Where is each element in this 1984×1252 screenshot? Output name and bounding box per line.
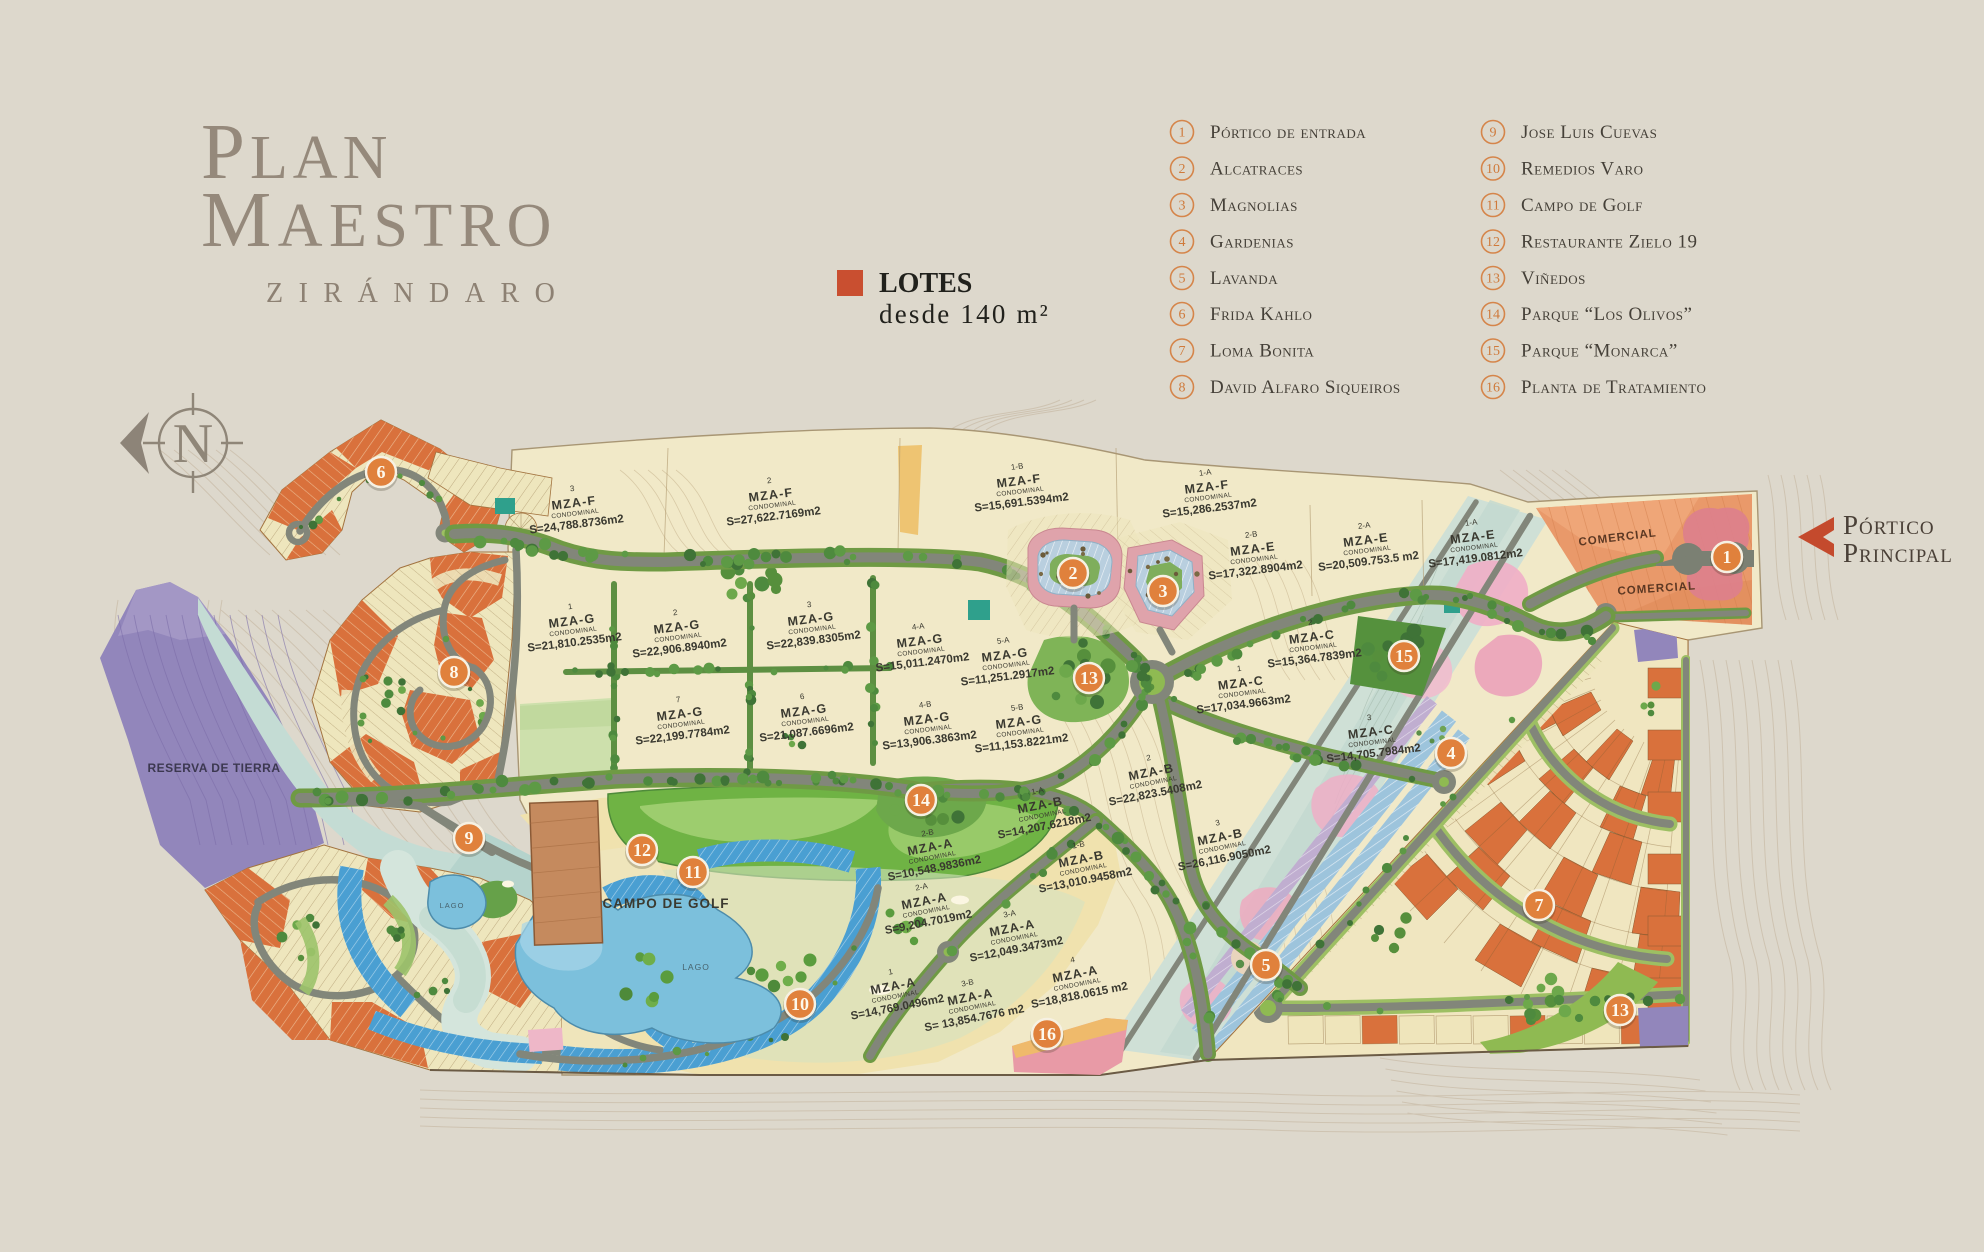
svg-text:14: 14 [912, 790, 930, 810]
svg-text:1-B: 1-B [1010, 461, 1023, 471]
svg-text:LAGO: LAGO [682, 962, 710, 972]
svg-text:N: N [173, 413, 213, 475]
svg-text:Magnolias: Magnolias [1210, 195, 1298, 216]
svg-text:Gardenias: Gardenias [1210, 232, 1294, 253]
svg-text:12: 12 [1486, 235, 1500, 250]
svg-text:10: 10 [791, 994, 809, 1014]
svg-text:RESERVA DE TIERRA: RESERVA DE TIERRA [148, 761, 281, 775]
svg-text:Restaurante Zielo 19: Restaurante Zielo 19 [1521, 232, 1698, 253]
svg-text:12: 12 [633, 840, 651, 860]
svg-text:3: 3 [1179, 199, 1186, 214]
svg-text:2-A: 2-A [1357, 520, 1371, 531]
svg-text:5: 5 [1179, 272, 1186, 287]
svg-text:4-B: 4-B [918, 699, 931, 709]
svg-text:14: 14 [1486, 308, 1500, 323]
svg-text:Viñedos: Viñedos [1521, 268, 1586, 289]
svg-text:8: 8 [450, 662, 459, 682]
svg-text:8: 8 [1179, 381, 1186, 396]
svg-text:2: 2 [1179, 162, 1186, 177]
svg-text:Pórtico de entrada: Pórtico de entrada [1210, 122, 1366, 143]
svg-text:1-A: 1-A [1198, 467, 1212, 478]
svg-text:1: 1 [1179, 126, 1186, 141]
svg-text:Planta de Tratamiento: Planta de Tratamiento [1521, 377, 1706, 398]
svg-text:6: 6 [377, 462, 386, 482]
svg-text:15: 15 [1395, 646, 1413, 666]
svg-text:11: 11 [1486, 199, 1499, 214]
svg-text:Frida Kahlo: Frida Kahlo [1210, 304, 1312, 325]
svg-text:11: 11 [684, 862, 701, 882]
svg-text:3: 3 [1159, 581, 1168, 601]
svg-text:13: 13 [1486, 272, 1500, 287]
svg-text:Pórtico: Pórtico [1843, 510, 1935, 540]
svg-text:15: 15 [1486, 344, 1500, 359]
svg-text:7: 7 [1179, 344, 1186, 359]
svg-text:LOTES: LOTES [879, 268, 972, 299]
svg-text:2: 2 [1069, 563, 1078, 583]
svg-text:16: 16 [1038, 1024, 1056, 1044]
svg-text:4: 4 [1447, 743, 1456, 763]
svg-text:Campo de Golf: Campo de Golf [1521, 195, 1643, 216]
svg-text:ZIRÁNDARO: ZIRÁNDARO [266, 278, 570, 309]
svg-text:Jose Luis Cuevas: Jose Luis Cuevas [1521, 122, 1657, 143]
svg-text:13: 13 [1611, 1000, 1629, 1020]
svg-text:4-A: 4-A [911, 621, 925, 632]
svg-text:16: 16 [1486, 381, 1500, 396]
svg-text:Parque “Monarca”: Parque “Monarca” [1521, 341, 1678, 362]
svg-text:6: 6 [1179, 308, 1186, 323]
svg-text:CAMPO DE GOLF: CAMPO DE GOLF [603, 896, 730, 911]
svg-text:Alcatraces: Alcatraces [1210, 159, 1303, 180]
svg-text:LAGO: LAGO [440, 901, 465, 910]
svg-text:desde 140 m²: desde 140 m² [879, 299, 1050, 329]
svg-text:Remedios Varo: Remedios Varo [1521, 159, 1644, 180]
svg-text:Lavanda: Lavanda [1210, 268, 1278, 289]
svg-text:9: 9 [1490, 126, 1497, 141]
svg-text:4: 4 [1179, 235, 1186, 250]
svg-text:9: 9 [465, 828, 474, 848]
svg-text:Parque “Los Olivos”: Parque “Los Olivos” [1521, 304, 1692, 325]
svg-text:5: 5 [1262, 955, 1271, 975]
svg-text:13: 13 [1080, 668, 1098, 688]
svg-text:1-A: 1-A [1464, 517, 1478, 528]
svg-text:1: 1 [1723, 547, 1732, 567]
svg-text:10: 10 [1486, 162, 1500, 177]
svg-text:David Alfaro Siqueiros: David Alfaro Siqueiros [1210, 377, 1401, 398]
svg-text:2-B: 2-B [1244, 529, 1257, 539]
svg-text:7: 7 [1535, 895, 1544, 915]
svg-text:5-B: 5-B [1010, 702, 1023, 712]
svg-text:Loma Bonita: Loma Bonita [1210, 341, 1314, 362]
svg-text:5-A: 5-A [996, 635, 1010, 646]
svg-text:Principal: Principal [1843, 538, 1953, 568]
